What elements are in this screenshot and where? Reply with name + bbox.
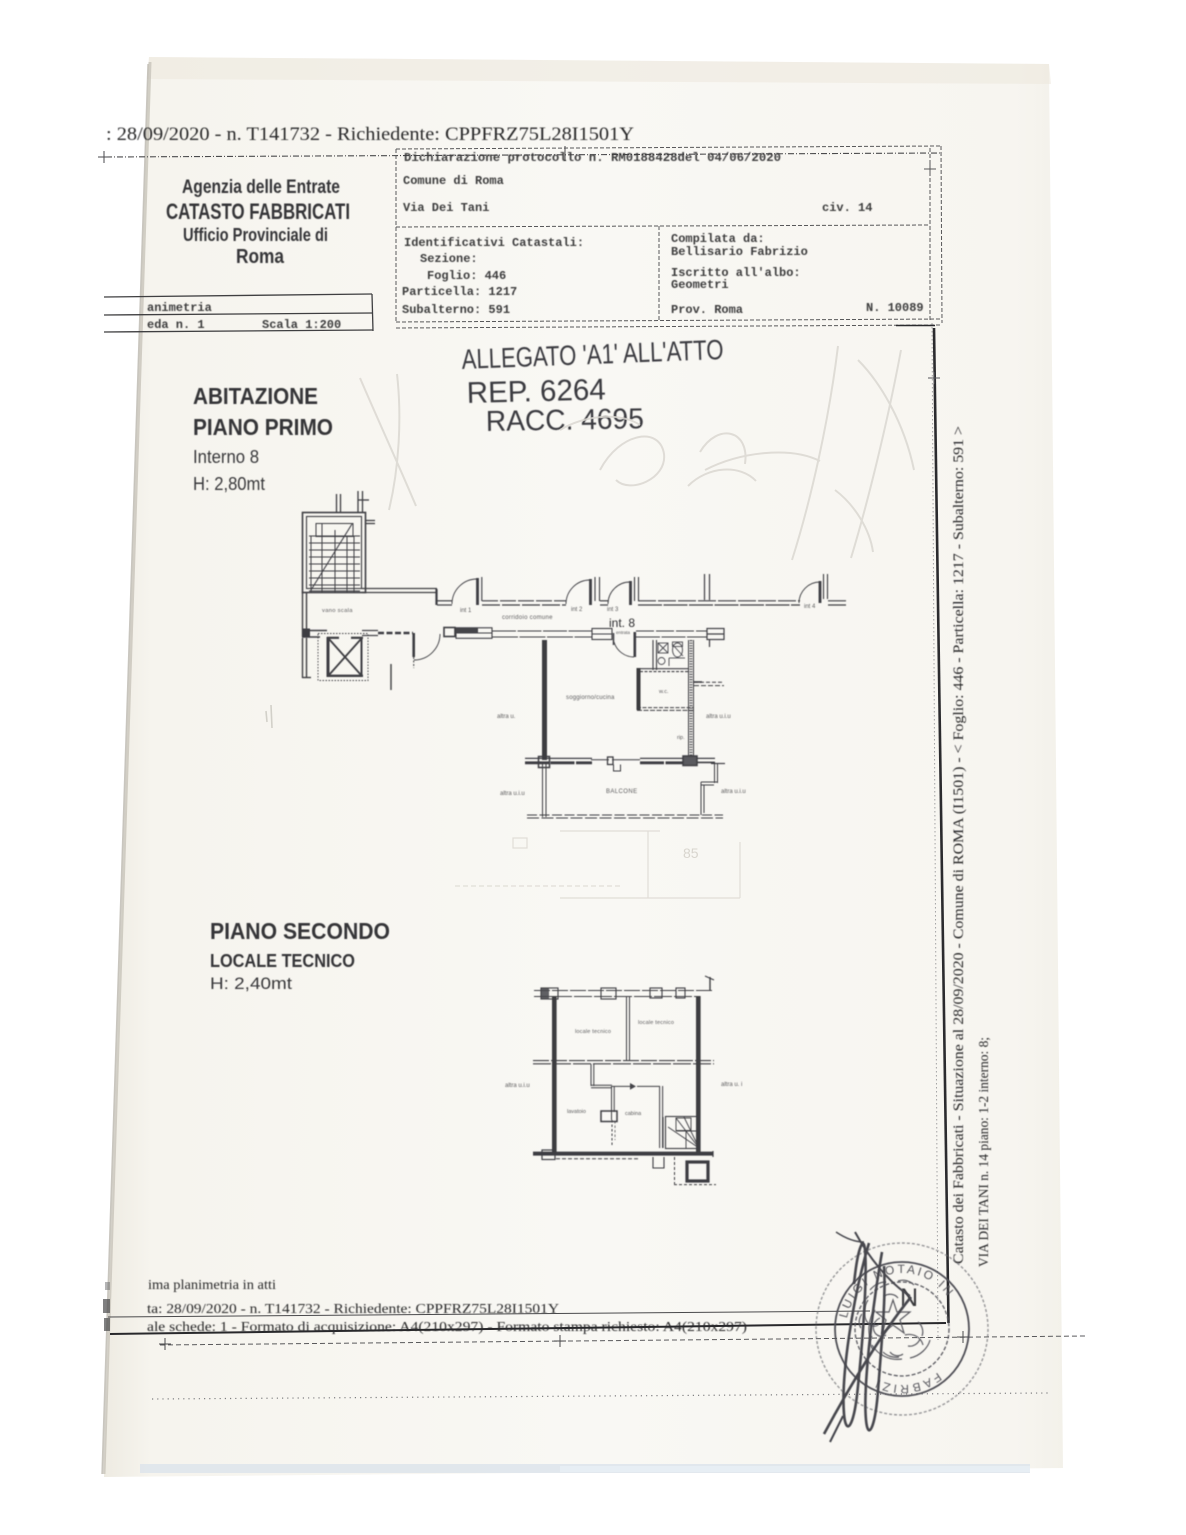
svg-text:Identificativi Catastali:: Identificativi Catastali: bbox=[404, 236, 584, 250]
svg-text:VIA DEI TANI n. 14 piano: 1-2: VIA DEI TANI n. 14 piano: 1-2 interno: 8… bbox=[976, 1037, 991, 1267]
svg-text:Dichiarazione protocollo n. RM: Dichiarazione protocollo n. RM0188428del… bbox=[404, 151, 781, 165]
svg-text:Subalterno: 591: Subalterno: 591 bbox=[402, 303, 510, 317]
svg-text:int. 8: int. 8 bbox=[609, 616, 635, 630]
svg-text:PIANO SECONDO: PIANO SECONDO bbox=[210, 918, 390, 944]
svg-text:Prov. Roma: Prov. Roma bbox=[671, 303, 743, 317]
svg-text:civ. 14: civ. 14 bbox=[822, 201, 872, 215]
svg-text:Comune di Roma: Comune di Roma bbox=[403, 174, 504, 188]
svg-text:H: 2,40mt: H: 2,40mt bbox=[210, 974, 292, 993]
svg-text:Interno 8: Interno 8 bbox=[193, 447, 259, 467]
svg-text:Particella: 1217: Particella: 1217 bbox=[402, 285, 517, 299]
svg-text:Roma: Roma bbox=[236, 246, 285, 268]
svg-text:Geometri: Geometri bbox=[671, 278, 729, 292]
svg-text:Scala 1:200: Scala 1:200 bbox=[262, 318, 341, 332]
svg-text:altra u.: altra u. bbox=[497, 714, 516, 720]
svg-text:Catasto dei Fabbricati - Situa: Catasto dei Fabbricati - Situazione al 2… bbox=[951, 426, 967, 1264]
svg-text:Ufficio Provinciale di: Ufficio Provinciale di bbox=[183, 225, 328, 245]
svg-text:PIANO PRIMO: PIANO PRIMO bbox=[193, 414, 333, 440]
svg-text:Via Dei Tani: Via Dei Tani bbox=[403, 201, 489, 215]
svg-text:int 3: int 3 bbox=[607, 607, 619, 613]
svg-text:CATASTO FABBRICATI: CATASTO FABBRICATI bbox=[166, 199, 350, 224]
svg-text:Bellisario Fabrizio: Bellisario Fabrizio bbox=[671, 245, 808, 259]
svg-text:ima planimetria in atti: ima planimetria in atti bbox=[148, 1278, 276, 1293]
svg-text:altra u.i.u: altra u.i.u bbox=[721, 789, 746, 795]
svg-text:Foglio: 446: Foglio: 446 bbox=[427, 269, 506, 283]
svg-text:BALCONE: BALCONE bbox=[606, 789, 637, 795]
svg-text:altra u.i.u: altra u.i.u bbox=[500, 791, 525, 797]
svg-text:int 4: int 4 bbox=[804, 604, 816, 610]
svg-text:Sezione:: Sezione: bbox=[420, 252, 478, 266]
svg-text:entrata: entrata bbox=[616, 630, 631, 635]
svg-text:cabina: cabina bbox=[625, 1111, 642, 1117]
svg-text:ABITAZIONE: ABITAZIONE bbox=[193, 383, 318, 409]
svg-text:altra u.i.u: altra u.i.u bbox=[706, 714, 731, 720]
svg-text:altra u.i.u: altra u.i.u bbox=[505, 1083, 530, 1089]
svg-text:locale tecnico: locale tecnico bbox=[638, 1020, 674, 1026]
svg-text:lavatoio: lavatoio bbox=[567, 1109, 586, 1115]
svg-text:w.c.: w.c. bbox=[658, 689, 669, 695]
svg-text:int 2: int 2 bbox=[571, 607, 583, 613]
svg-text:eda n. 1: eda n. 1 bbox=[147, 318, 205, 332]
svg-text:corridoio comune: corridoio comune bbox=[502, 615, 553, 621]
svg-text:rip.: rip. bbox=[677, 735, 685, 741]
svg-text:H: 2,80mt: H: 2,80mt bbox=[193, 474, 265, 494]
svg-text:locale tecnico: locale tecnico bbox=[575, 1029, 611, 1035]
svg-text:RACC. 4695: RACC. 4695 bbox=[486, 403, 645, 438]
svg-text:altra u. i: altra u. i bbox=[721, 1082, 742, 1088]
svg-text:Agenzia delle Entrate: Agenzia delle Entrate bbox=[182, 177, 340, 198]
svg-text:85: 85 bbox=[683, 845, 699, 861]
svg-text:Compilata da:: Compilata da: bbox=[671, 232, 765, 246]
svg-text:: 28/09/2020 - n. T141732 - Ri: : 28/09/2020 - n. T141732 - Richiedente:… bbox=[106, 124, 634, 145]
svg-text:animetria: animetria bbox=[147, 301, 212, 315]
svg-text:soggiorno/cucina: soggiorno/cucina bbox=[566, 695, 615, 701]
svg-text:LOCALE TECNICO: LOCALE TECNICO bbox=[210, 951, 355, 971]
svg-text:vano scala: vano scala bbox=[322, 608, 353, 614]
svg-text:N. 10089: N. 10089 bbox=[866, 301, 924, 315]
svg-text:int 1: int 1 bbox=[460, 608, 472, 614]
